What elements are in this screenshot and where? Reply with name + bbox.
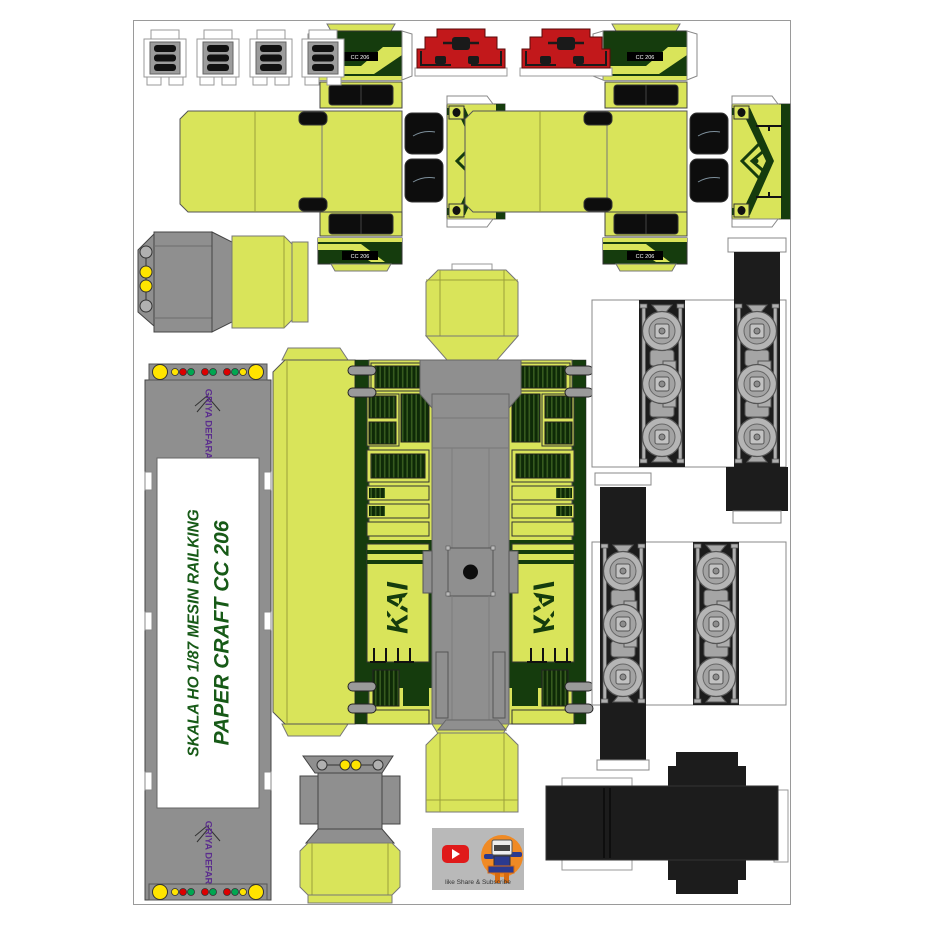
hood-side-right xyxy=(509,360,593,724)
marker-light xyxy=(373,760,383,770)
youtube-play-icon xyxy=(442,845,469,863)
papercraft-sheet: CC 206 xyxy=(0,0,929,929)
marker-light xyxy=(317,760,327,770)
subscribe-caption: like Share & Subscribe xyxy=(432,879,524,886)
marker-light xyxy=(140,280,152,292)
marker-light xyxy=(351,760,361,770)
roof-vent xyxy=(436,652,448,718)
roof-vent xyxy=(493,652,505,718)
mascot-character xyxy=(478,830,526,886)
hood-side-left xyxy=(348,360,432,724)
marker-light xyxy=(140,246,152,258)
marker-light xyxy=(340,760,350,770)
youtube-promo-box: like Share & Subscribe xyxy=(432,828,524,890)
part-radiator-grilles xyxy=(143,30,353,88)
roof-fan xyxy=(463,565,478,580)
part-front-pilot-lower xyxy=(290,748,410,906)
svg-text:GRIYA DEFARA: GRIYA DEFARA xyxy=(203,389,214,460)
part-bogie-sideframes xyxy=(585,228,795,773)
part-horn-caps xyxy=(411,24,626,82)
svg-text:GRIYA DEFARA: GRIYA DEFARA xyxy=(203,821,214,892)
hood-top-panel xyxy=(273,360,355,724)
part-fuel-tank xyxy=(540,746,792,900)
marker-light xyxy=(140,266,152,278)
sheet-title-line2: SKALA HO 1/87 MESIN RAILKING xyxy=(186,509,203,756)
sheet-title-line1: PAPER CRAFT CC 206 xyxy=(211,520,234,745)
marker-light xyxy=(140,300,152,312)
part-cab-roof-box-bottom xyxy=(418,718,526,822)
tank-body xyxy=(546,786,778,860)
part-chassis-strip: GRIYA DEFARA PAPER CRAFT CC 206 SKALA HO… xyxy=(143,362,273,904)
